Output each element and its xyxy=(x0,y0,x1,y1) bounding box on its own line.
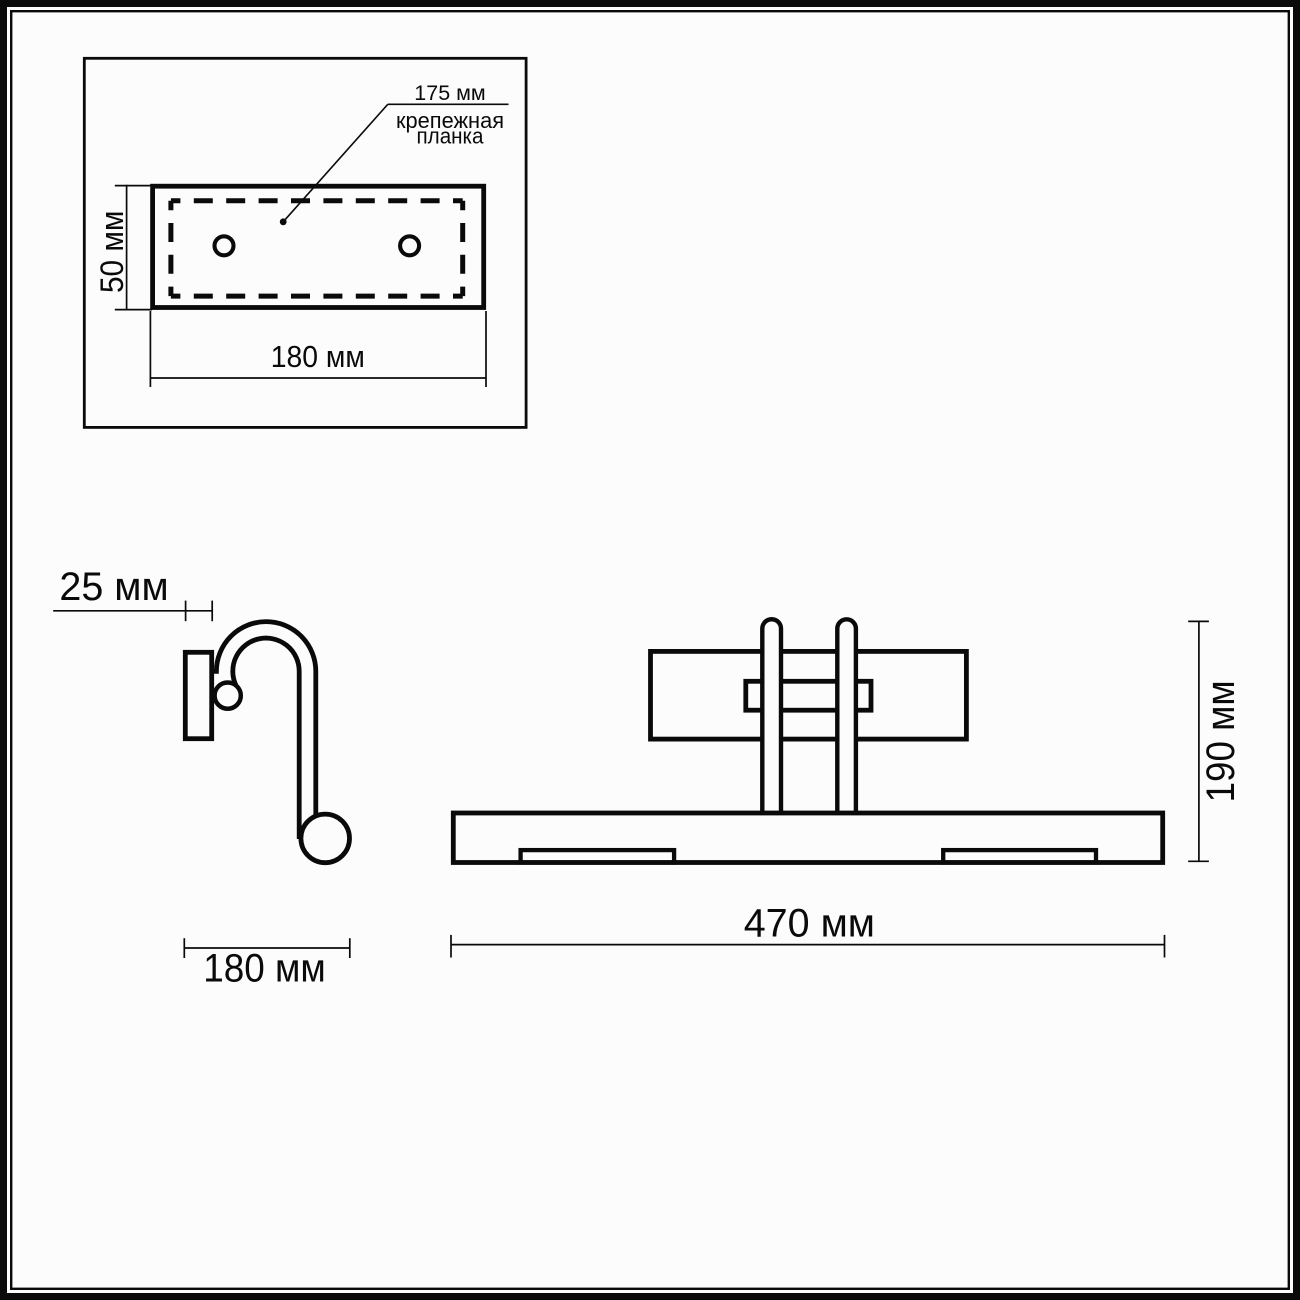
svg-text:планка: планка xyxy=(417,124,485,149)
svg-text:50 мм: 50 мм xyxy=(94,211,130,293)
svg-text:470 мм: 470 мм xyxy=(744,902,875,946)
svg-text:175 мм: 175 мм xyxy=(414,81,485,105)
svg-text:180 мм: 180 мм xyxy=(203,947,326,991)
svg-text:180 мм: 180 мм xyxy=(271,339,365,374)
svg-text:25 мм: 25 мм xyxy=(59,565,168,609)
svg-text:190 мм: 190 мм xyxy=(1199,680,1243,802)
